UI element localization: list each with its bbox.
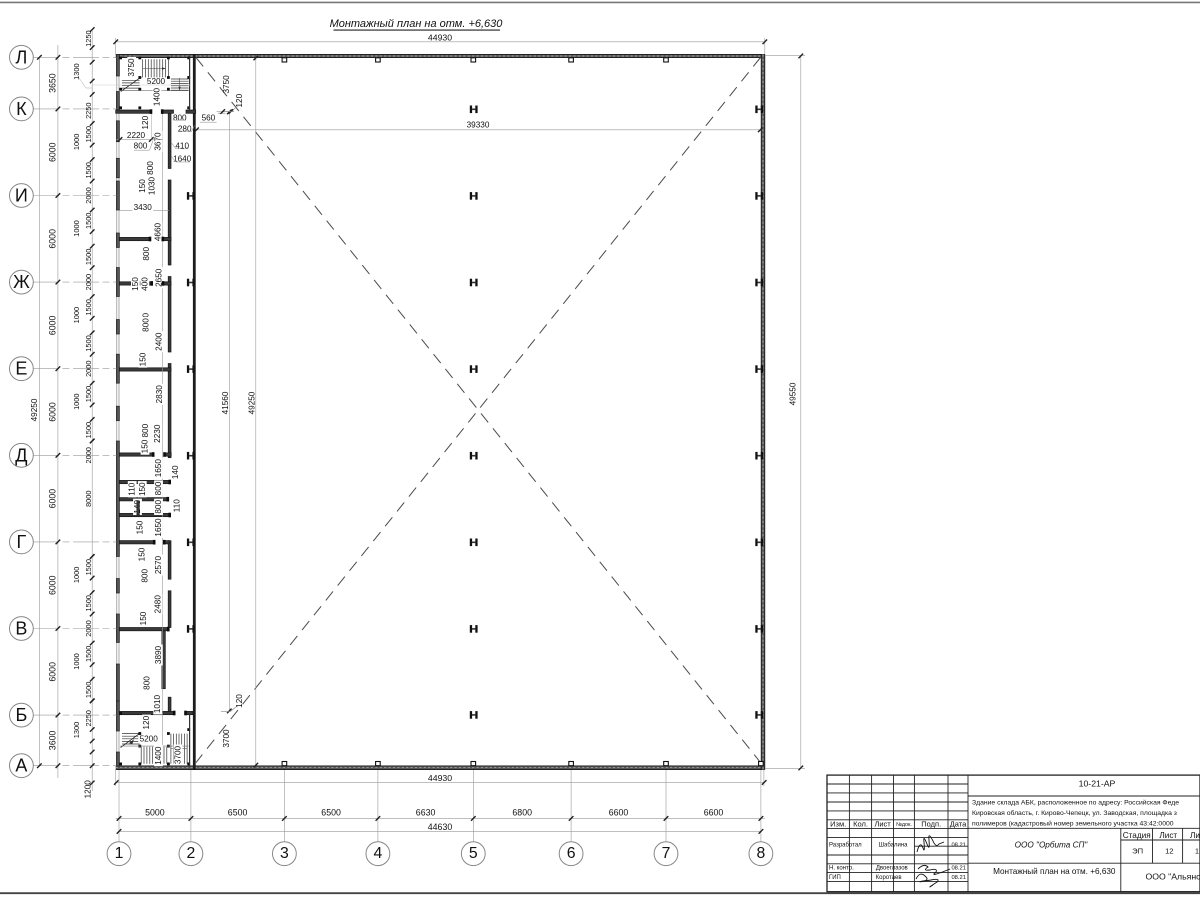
svg-text:Е: Е <box>15 359 27 379</box>
svg-text:6000: 6000 <box>48 489 58 509</box>
svg-text:1000: 1000 <box>72 567 81 583</box>
svg-text:Лист: Лист <box>874 819 891 828</box>
svg-text:08.21: 08.21 <box>951 843 966 849</box>
svg-text:2220: 2220 <box>127 131 146 140</box>
svg-text:ООО "Орбита СП": ООО "Орбита СП" <box>1015 841 1089 850</box>
svg-text:2830: 2830 <box>155 385 164 404</box>
svg-text:Н. контр.: Н. контр. <box>829 866 854 872</box>
svg-text:3: 3 <box>280 845 289 862</box>
svg-text:6000: 6000 <box>48 402 58 422</box>
svg-text:1500: 1500 <box>84 299 93 315</box>
svg-text:2000: 2000 <box>84 187 93 203</box>
svg-text:800: 800 <box>140 569 149 583</box>
svg-text:3750: 3750 <box>127 58 136 77</box>
svg-text:1000: 1000 <box>72 653 81 669</box>
svg-text:Двоеглазов: Двоеглазов <box>876 866 908 872</box>
svg-text:Стадия: Стадия <box>1123 831 1151 840</box>
svg-text:1400: 1400 <box>154 746 163 765</box>
svg-text:2230: 2230 <box>153 424 162 443</box>
svg-text:120: 120 <box>235 93 244 107</box>
svg-text:280: 280 <box>178 125 192 134</box>
svg-text:2000: 2000 <box>84 620 93 636</box>
svg-text:5: 5 <box>469 845 478 862</box>
svg-text:Разработал: Разработал <box>829 843 862 849</box>
svg-text:800: 800 <box>154 481 163 495</box>
svg-text:800: 800 <box>146 161 155 175</box>
svg-text:800: 800 <box>134 142 148 151</box>
svg-text:1500: 1500 <box>84 162 93 178</box>
svg-text:560: 560 <box>202 114 216 123</box>
svg-text:6: 6 <box>567 845 576 862</box>
svg-text:2480: 2480 <box>153 595 162 614</box>
svg-text:ЭП: ЭП <box>1132 847 1143 856</box>
svg-text:10-21-АР: 10-21-АР <box>1079 779 1116 789</box>
svg-text:ГИП: ГИП <box>829 875 841 881</box>
svg-text:Г: Г <box>17 532 27 552</box>
svg-text:1500: 1500 <box>84 595 93 611</box>
svg-text:А: А <box>15 756 27 776</box>
svg-text:6600: 6600 <box>609 807 629 817</box>
svg-text:8: 8 <box>757 845 766 862</box>
svg-text:120: 120 <box>142 715 151 729</box>
svg-text:Здание склада АБК, расположенн: Здание склада АБК, расположенное по адре… <box>972 799 1179 807</box>
svg-text:5200: 5200 <box>140 735 159 744</box>
svg-text:2000: 2000 <box>84 360 93 376</box>
svg-text:1400: 1400 <box>153 87 162 106</box>
svg-text:Б: Б <box>15 705 27 725</box>
svg-text:800: 800 <box>142 247 151 261</box>
svg-text:8000: 8000 <box>84 490 93 506</box>
svg-text:1650: 1650 <box>154 459 163 478</box>
svg-text:1500: 1500 <box>84 559 93 575</box>
svg-text:1500: 1500 <box>84 126 93 142</box>
svg-text:7: 7 <box>662 845 671 862</box>
svg-text:2: 2 <box>187 845 196 862</box>
svg-text:3650: 3650 <box>48 73 58 93</box>
svg-text:6630: 6630 <box>416 807 436 817</box>
svg-text:Изм.: Изм. <box>830 819 846 828</box>
svg-text:410: 410 <box>175 142 189 151</box>
svg-text:110: 110 <box>128 482 137 495</box>
svg-text:44930: 44930 <box>428 773 452 783</box>
svg-text:1500: 1500 <box>84 682 93 698</box>
svg-text:1010: 1010 <box>153 694 162 713</box>
svg-text:1500: 1500 <box>84 335 93 351</box>
svg-text:3890: 3890 <box>154 645 163 664</box>
svg-text:Л: Л <box>15 47 27 67</box>
svg-text:150: 150 <box>141 439 150 453</box>
svg-text:Монтажный план на отм. +6,630: Монтажный план на отм. +6,630 <box>330 18 504 30</box>
svg-text:150: 150 <box>137 547 146 561</box>
svg-text:39330: 39330 <box>467 120 490 129</box>
svg-text:120: 120 <box>235 694 244 708</box>
svg-text:400: 400 <box>140 277 149 291</box>
svg-text:800: 800 <box>141 318 150 332</box>
svg-text:4660: 4660 <box>153 222 162 241</box>
svg-text:3700: 3700 <box>222 729 231 748</box>
svg-text:110: 110 <box>172 499 181 512</box>
svg-text:Лист: Лист <box>1159 831 1177 840</box>
svg-text:08.21: 08.21 <box>951 866 966 872</box>
svg-text:6800: 6800 <box>512 807 532 817</box>
svg-text:Ж: Ж <box>13 272 30 292</box>
svg-text:1500: 1500 <box>84 386 93 402</box>
svg-text:1500: 1500 <box>84 422 93 438</box>
svg-text:3750: 3750 <box>222 75 231 94</box>
svg-text:№док.: №док. <box>896 822 912 828</box>
svg-text:1500: 1500 <box>84 646 93 662</box>
svg-text:1: 1 <box>1195 847 1199 856</box>
svg-text:6500: 6500 <box>321 807 341 817</box>
svg-text:И: И <box>15 186 28 206</box>
svg-text:120: 120 <box>141 115 150 129</box>
svg-text:800: 800 <box>143 676 152 690</box>
svg-text:1500: 1500 <box>84 213 93 229</box>
svg-text:6000: 6000 <box>48 142 58 162</box>
svg-text:49250: 49250 <box>30 398 39 421</box>
svg-text:5000: 5000 <box>145 807 165 817</box>
svg-text:Шабалина: Шабалина <box>879 843 909 849</box>
svg-text:Подп.: Подп. <box>921 819 941 828</box>
svg-text:4: 4 <box>374 845 383 862</box>
svg-text:140: 140 <box>171 465 180 479</box>
svg-text:08.21: 08.21 <box>951 875 966 881</box>
svg-text:1000: 1000 <box>72 134 81 150</box>
svg-text:3700: 3700 <box>174 745 183 764</box>
svg-text:1030: 1030 <box>147 176 156 195</box>
svg-text:полимеров (кадастровый номер з: полимеров (кадастровый номер земельного … <box>972 820 1174 828</box>
svg-text:1200: 1200 <box>83 780 92 799</box>
svg-text:Кол.: Кол. <box>853 819 868 828</box>
svg-text:6000: 6000 <box>48 229 58 249</box>
svg-text:150: 150 <box>138 352 147 366</box>
svg-text:Лис: Лис <box>1190 831 1200 840</box>
svg-text:41560: 41560 <box>221 391 230 414</box>
svg-text:44930: 44930 <box>428 32 452 42</box>
svg-text:1300: 1300 <box>72 722 81 738</box>
svg-text:3600: 3600 <box>48 731 58 751</box>
svg-text:2570: 2570 <box>154 555 163 574</box>
svg-text:800: 800 <box>154 500 163 514</box>
svg-text:1250: 1250 <box>84 30 93 46</box>
svg-text:800: 800 <box>173 113 187 122</box>
svg-text:150: 150 <box>131 277 140 291</box>
svg-text:Кировская область, г. Кирово-Ч: Кировская область, г. Кирово-Чепецк, ул.… <box>972 809 1177 817</box>
svg-text:6000: 6000 <box>48 575 58 595</box>
svg-text:12: 12 <box>1165 847 1173 856</box>
svg-text:1000: 1000 <box>72 307 81 323</box>
svg-text:К: К <box>16 99 27 119</box>
svg-text:49550: 49550 <box>788 382 797 405</box>
svg-text:6000: 6000 <box>48 316 58 336</box>
svg-text:2400: 2400 <box>154 332 163 351</box>
svg-text:1000: 1000 <box>72 220 81 236</box>
svg-text:1640: 1640 <box>173 155 192 164</box>
svg-text:150: 150 <box>138 179 147 193</box>
svg-text:3670: 3670 <box>154 132 163 151</box>
svg-text:800: 800 <box>141 423 150 437</box>
svg-text:6500: 6500 <box>228 807 248 817</box>
svg-text:2250: 2250 <box>84 710 93 726</box>
svg-text:Монтажный план на отм. +6,630: Монтажный план на отм. +6,630 <box>993 867 1116 876</box>
svg-text:6000: 6000 <box>48 662 58 682</box>
svg-text:6600: 6600 <box>704 807 724 817</box>
svg-text:Д: Д <box>15 445 27 465</box>
svg-text:2000: 2000 <box>84 447 93 463</box>
svg-text:44630: 44630 <box>428 822 453 832</box>
svg-text:3430: 3430 <box>134 203 153 212</box>
svg-text:1300: 1300 <box>72 63 81 79</box>
svg-text:1500: 1500 <box>84 249 93 265</box>
svg-text:150: 150 <box>136 520 145 534</box>
svg-text:150: 150 <box>138 482 147 496</box>
svg-text:В: В <box>15 619 27 639</box>
svg-text:49250: 49250 <box>248 391 257 414</box>
svg-text:150: 150 <box>139 611 148 625</box>
svg-text:2250: 2250 <box>84 102 93 118</box>
svg-text:1650: 1650 <box>154 518 163 537</box>
svg-text:2000: 2000 <box>84 274 93 290</box>
svg-text:ООО "Альянс: ООО "Альянс <box>1145 872 1200 882</box>
svg-text:Дата: Дата <box>950 819 967 828</box>
svg-text:1: 1 <box>115 845 124 862</box>
svg-text:1000: 1000 <box>72 393 81 409</box>
svg-text:Коротаев: Коротаев <box>876 875 902 881</box>
